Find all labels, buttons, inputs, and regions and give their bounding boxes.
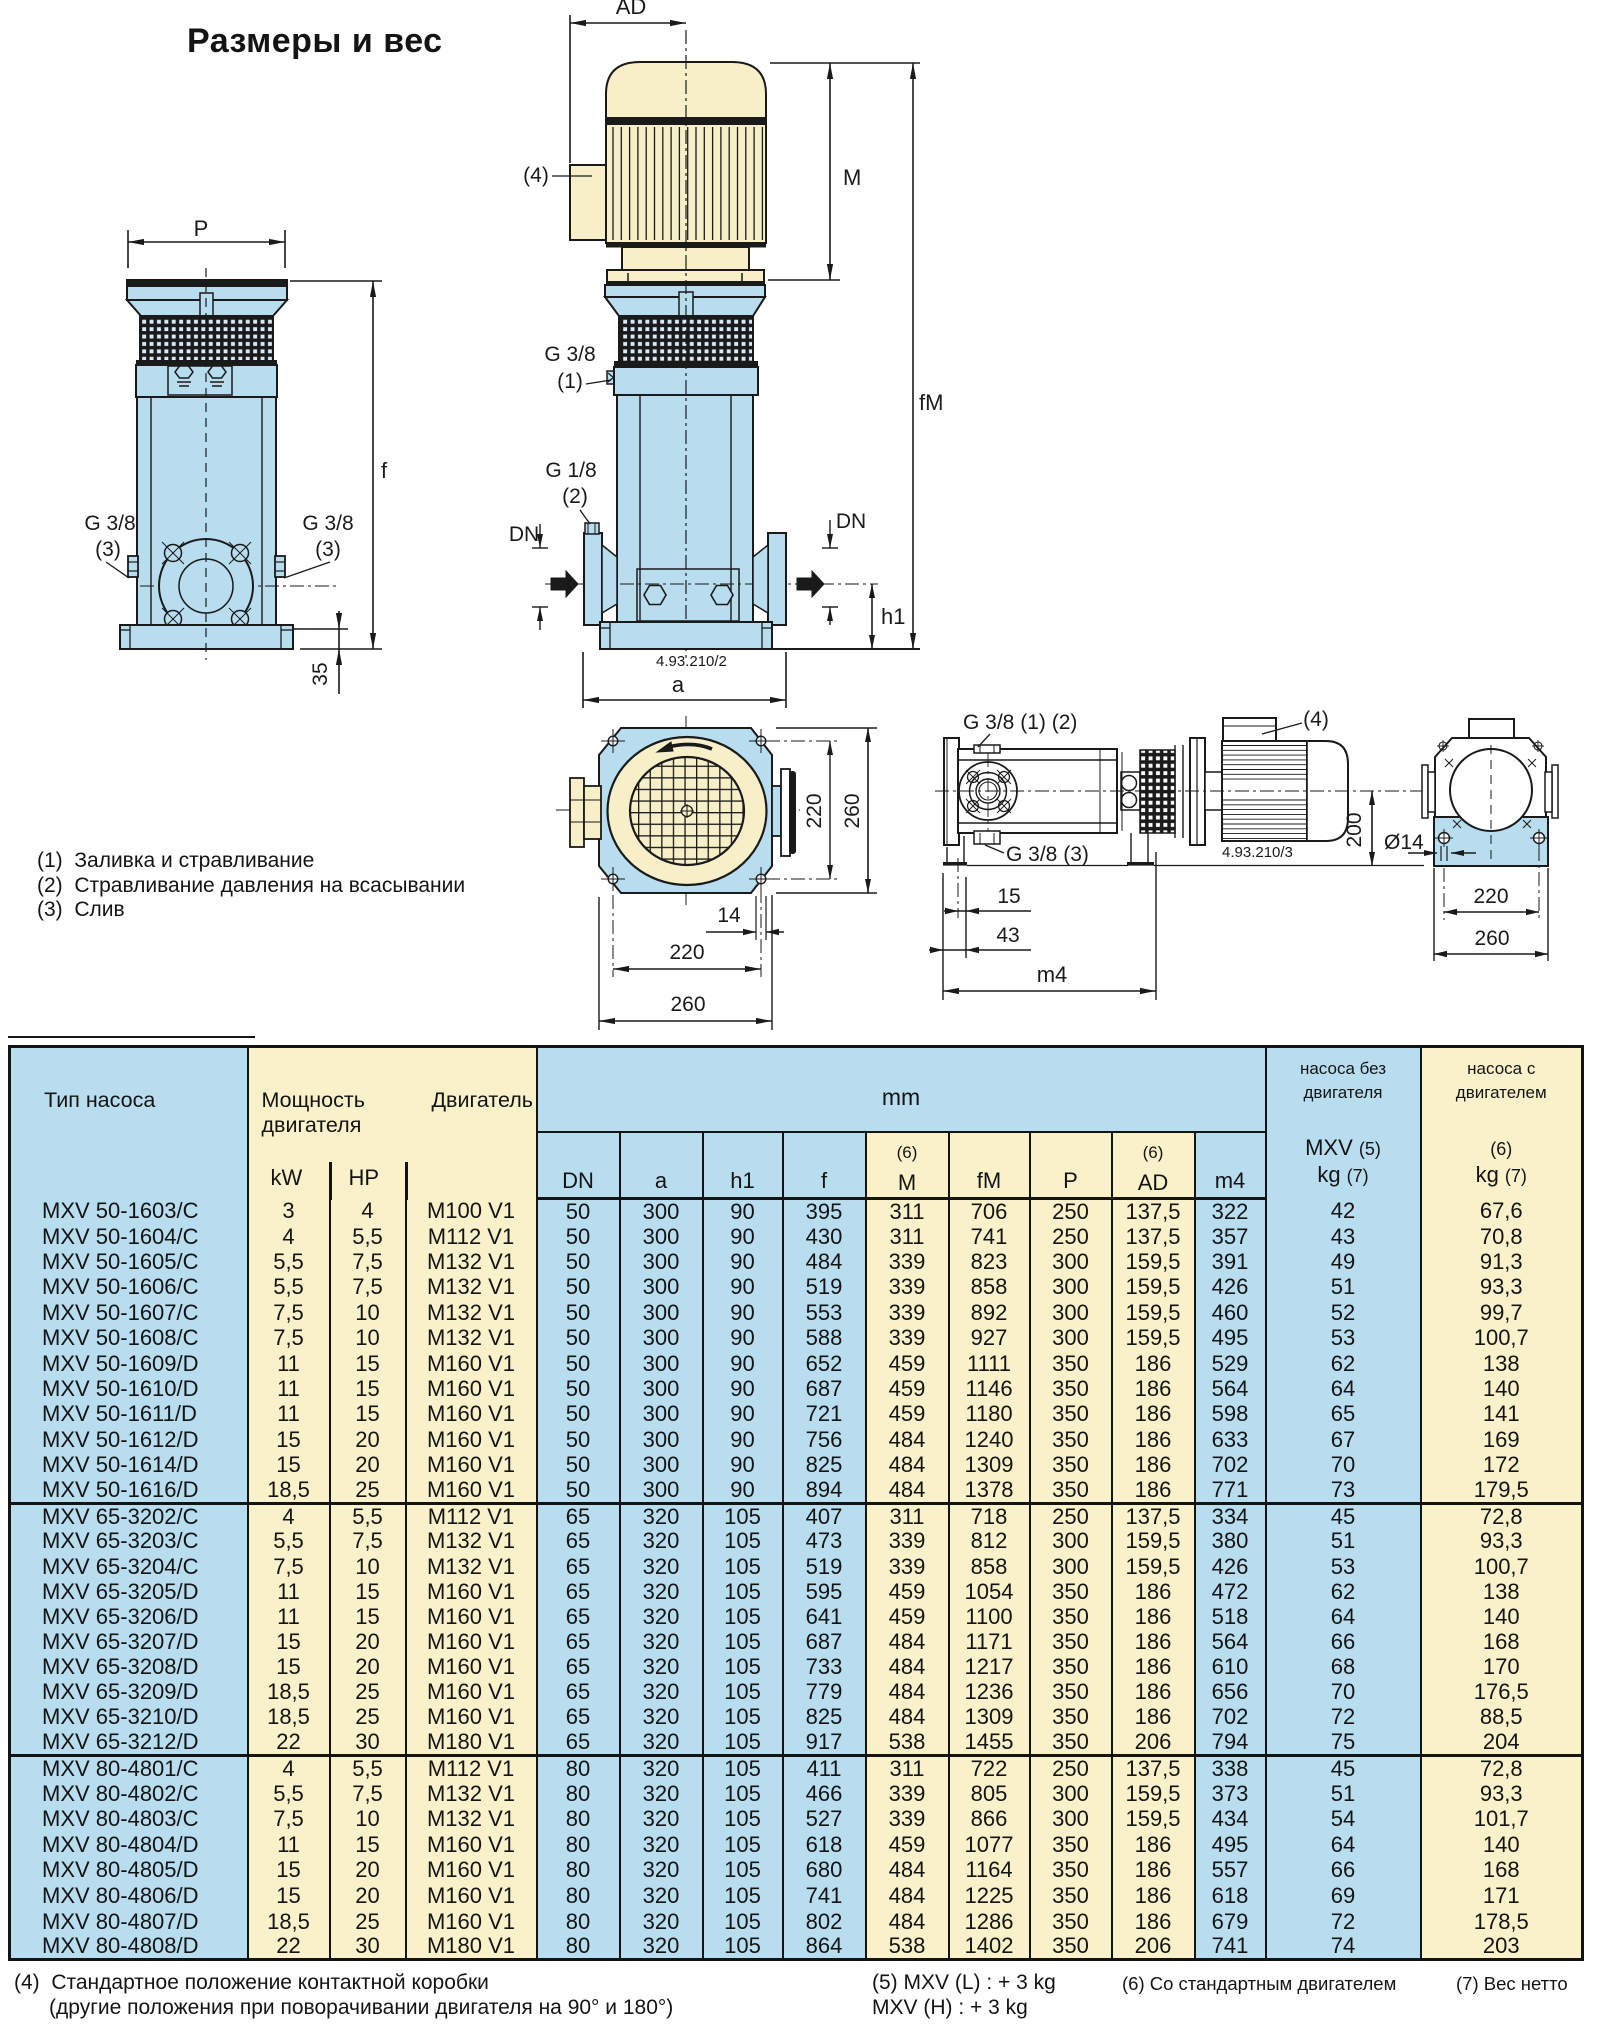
- svg-text:h1: h1: [881, 604, 905, 629]
- svg-text:(4): (4): [1303, 708, 1329, 731]
- svg-text:G 3/8: G 3/8: [84, 512, 135, 535]
- svg-text:260: 260: [841, 793, 864, 828]
- svg-text:35: 35: [309, 662, 332, 685]
- svg-text:a: a: [672, 672, 685, 697]
- svg-text:DN: DN: [509, 523, 539, 546]
- svg-text:M: M: [843, 165, 861, 190]
- svg-text:220: 220: [1473, 885, 1508, 908]
- svg-text:43: 43: [996, 924, 1019, 947]
- svg-text:G 1/8: G 1/8: [545, 459, 596, 482]
- svg-text:260: 260: [670, 993, 705, 1016]
- svg-text:(3): (3): [95, 538, 121, 561]
- svg-text:15: 15: [997, 885, 1020, 908]
- svg-text:f: f: [381, 458, 388, 483]
- svg-text:4.93.210/3: 4.93.210/3: [1222, 844, 1293, 861]
- svg-text:G 3/8 (1) (2): G 3/8 (1) (2): [963, 711, 1077, 734]
- svg-text:G 3/8: G 3/8: [302, 512, 353, 535]
- svg-text:200: 200: [1343, 812, 1366, 847]
- svg-text:Ø14: Ø14: [1384, 831, 1424, 854]
- svg-text:220: 220: [669, 941, 704, 964]
- svg-text:fM: fM: [919, 390, 943, 415]
- svg-text:DN: DN: [836, 510, 866, 533]
- svg-text:260: 260: [1474, 927, 1509, 950]
- svg-text:G 3/8: G 3/8: [544, 343, 595, 366]
- svg-text:P: P: [194, 216, 209, 241]
- svg-text:(3): (3): [315, 538, 341, 561]
- svg-text:(4): (4): [523, 164, 549, 187]
- svg-text:AD: AD: [616, 0, 647, 19]
- svg-text:m4: m4: [1037, 962, 1068, 987]
- svg-text:(2): (2): [562, 485, 588, 508]
- svg-text:G 3/8 (3): G 3/8 (3): [1006, 843, 1089, 866]
- svg-text:14: 14: [717, 904, 741, 927]
- svg-text:220: 220: [803, 793, 826, 828]
- svg-text:4.93.210/2: 4.93.210/2: [656, 653, 727, 670]
- svg-text:(1): (1): [557, 370, 583, 393]
